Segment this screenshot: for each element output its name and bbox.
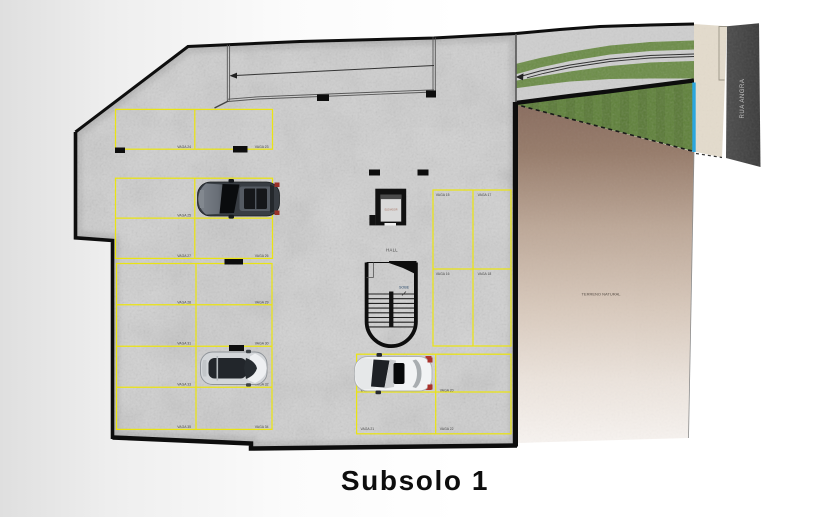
svg-text:VAGA 18: VAGA 18 [478,272,492,276]
svg-text:Subsolo 1: Subsolo 1 [341,465,489,496]
svg-text:VAGA 22: VAGA 22 [440,427,454,431]
svg-text:TERRENO NATURAL: TERRENO NATURAL [581,292,621,297]
svg-text:VAGA 26: VAGA 26 [255,254,269,258]
svg-text:VAGA 31: VAGA 31 [177,342,191,346]
svg-text:VAGA 34: VAGA 34 [255,425,269,429]
svg-text:VAGA 30: VAGA 30 [255,342,269,346]
svg-text:ELEVADOR: ELEVADOR [385,209,398,212]
svg-text:VAGA 21: VAGA 21 [361,427,375,431]
svg-text:RUA ANGRA: RUA ANGRA [740,79,746,119]
svg-text:VAGA 29: VAGA 29 [255,300,269,304]
svg-text:VAGA 35: VAGA 35 [177,425,191,429]
svg-text:VAGA 17: VAGA 17 [478,193,492,197]
svg-text:HALL: HALL [386,248,398,253]
svg-text:VAGA 23: VAGA 23 [255,145,269,149]
svg-text:VAGA 33: VAGA 33 [177,383,191,387]
svg-text:VAGA 16: VAGA 16 [436,272,450,276]
svg-text:VAGA 20: VAGA 20 [440,388,454,392]
svg-text:VAGA 27: VAGA 27 [177,254,191,258]
svg-text:VAGA 25: VAGA 25 [177,214,191,218]
svg-text:VAGA 15: VAGA 15 [436,193,450,197]
svg-text:VAGA 24: VAGA 24 [177,145,191,149]
svg-text:SOBE: SOBE [399,286,410,290]
svg-text:VAGA 28: VAGA 28 [177,300,191,304]
